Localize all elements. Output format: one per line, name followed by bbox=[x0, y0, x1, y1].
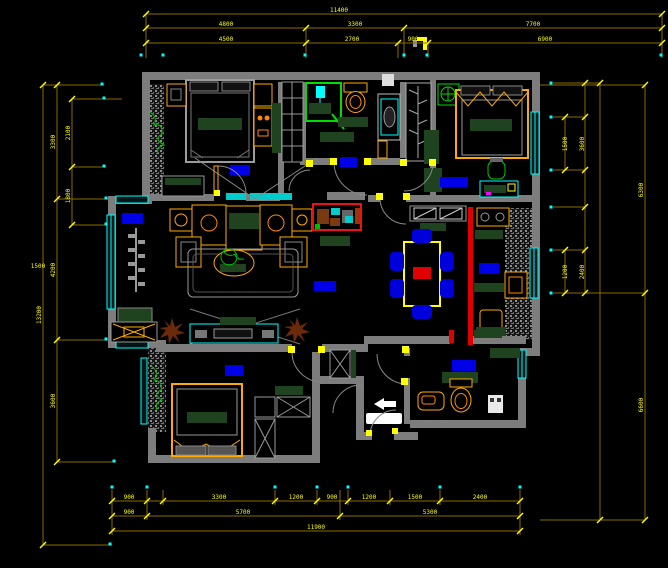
room-label-kitchen bbox=[479, 263, 499, 274]
dim-text: 3300 bbox=[212, 494, 227, 501]
door-hinge-mark bbox=[392, 428, 398, 434]
balcony-bench bbox=[118, 308, 152, 322]
dim-text: 6300 bbox=[638, 182, 645, 197]
bed-bl-drawer-b bbox=[208, 446, 236, 455]
dim-text: 2700 bbox=[345, 36, 360, 43]
wall-bl-east bbox=[312, 352, 320, 463]
bed-tl-blanket bbox=[198, 118, 242, 130]
bed-bl-drawer-a bbox=[176, 446, 206, 455]
kitchen-sink bbox=[505, 272, 527, 298]
tv bbox=[214, 329, 252, 338]
console-item-brown-b bbox=[330, 218, 340, 226]
sofa-cushion bbox=[229, 213, 259, 229]
dim-text: 6600 bbox=[638, 397, 645, 412]
dining-chair-left-1 bbox=[390, 252, 404, 271]
entrance-label-bar bbox=[366, 413, 402, 424]
kitchen-counter-green-a bbox=[475, 230, 503, 239]
extension-marker-dot bbox=[101, 83, 104, 86]
wall-top bbox=[150, 72, 540, 80]
soundbar bbox=[220, 317, 256, 325]
washbasin-cabinet bbox=[378, 141, 387, 158]
dim-text: 900 bbox=[327, 494, 338, 501]
room-label-living bbox=[314, 281, 336, 291]
utility-shelf-green-a bbox=[424, 130, 439, 164]
dresser-tl bbox=[254, 108, 272, 146]
extension-marker-dot bbox=[103, 97, 106, 100]
dim-text: 6900 bbox=[538, 36, 553, 43]
door-hinge-mark bbox=[400, 159, 407, 166]
console-item-cyan-a bbox=[331, 208, 340, 215]
bed-tr-pillow-left bbox=[461, 86, 490, 95]
room-label-bath-tl bbox=[340, 157, 357, 167]
door-hinge-mark bbox=[288, 346, 295, 353]
door-hinge-mark bbox=[376, 193, 383, 200]
nightstand-tr bbox=[254, 84, 272, 106]
wall-bath-tl-south-b bbox=[367, 158, 400, 165]
plant-brown-right bbox=[284, 317, 310, 343]
extension-marker-dot bbox=[274, 486, 277, 489]
extension-marker-dot bbox=[660, 54, 663, 57]
toilet-tl-tank bbox=[344, 83, 367, 92]
room-label-bath-br bbox=[452, 360, 476, 371]
dining-chair-right-2 bbox=[440, 279, 454, 298]
dim-text: 900 bbox=[408, 36, 419, 43]
plant-stand-leaf-5 bbox=[128, 262, 135, 266]
door-hinge-mark bbox=[214, 190, 220, 196]
window-balcony-top bbox=[116, 196, 148, 203]
shower-bench bbox=[309, 103, 331, 114]
sliding-track-red-stub bbox=[449, 330, 454, 343]
extension-marker-dot bbox=[162, 54, 165, 57]
door-hinge-mark bbox=[306, 160, 313, 167]
plant-stand-leaf-1 bbox=[128, 234, 135, 238]
extension-marker-dot bbox=[550, 206, 553, 209]
dim-text: 2400 bbox=[473, 494, 488, 501]
bed-tr-pillow-right bbox=[493, 86, 522, 95]
wall-bath-bottom bbox=[410, 420, 526, 428]
extension-marker-dot bbox=[403, 54, 406, 57]
extension-marker-dot bbox=[426, 54, 429, 57]
level-mark-a bbox=[417, 37, 427, 41]
wall-bath-tl-east bbox=[400, 82, 406, 158]
extension-marker-dot bbox=[105, 338, 108, 341]
washing-machine-knob-a bbox=[490, 398, 494, 402]
room-label-bedroom-bl bbox=[225, 365, 243, 376]
plant-stand-leaf-2 bbox=[138, 240, 145, 244]
bed-bl-blanket bbox=[187, 412, 227, 423]
dim-text: 2100 bbox=[65, 125, 72, 140]
floor-plan-canvas: 1140048003300770045002700900690021001800… bbox=[0, 0, 668, 568]
bed-tl-pillow-right bbox=[222, 82, 250, 91]
washing-machine bbox=[488, 395, 503, 413]
room-label-bedroom-tr bbox=[440, 177, 468, 187]
dim-text: 1500 bbox=[31, 263, 46, 270]
bed-tl-pillow-left bbox=[190, 82, 218, 91]
extension-marker-dot bbox=[105, 223, 108, 226]
dim-text: 5300 bbox=[423, 509, 438, 516]
wall-left-upper bbox=[142, 72, 150, 204]
console-item-green bbox=[315, 224, 320, 229]
dim-text: 900 bbox=[124, 494, 135, 501]
dim-text: 3600 bbox=[579, 136, 586, 151]
dresser-knob-b bbox=[265, 116, 270, 121]
door-hinge-mark bbox=[318, 346, 325, 353]
entrance-arrow-icon bbox=[374, 398, 396, 410]
door-hinge-mark bbox=[403, 193, 410, 200]
dim-text-total-bottom: 11900 bbox=[307, 524, 325, 531]
dining-chair-bottom bbox=[412, 305, 432, 319]
dim-text: 1800 bbox=[65, 188, 72, 203]
kitchen-counter-green-b bbox=[474, 283, 504, 292]
extension-marker-dot bbox=[550, 249, 553, 252]
dim-text: 4200 bbox=[50, 262, 57, 277]
chair-tr-back bbox=[490, 158, 503, 162]
dim-text: 3600 bbox=[50, 393, 57, 408]
dim-text: 1500 bbox=[408, 494, 423, 501]
plant-stand-leaf-4 bbox=[138, 254, 145, 258]
desk-tr-top bbox=[484, 185, 506, 193]
wall-mid-bottom-a bbox=[364, 336, 450, 344]
extension-marker-dot bbox=[304, 54, 307, 57]
extension-marker-dot bbox=[316, 486, 319, 489]
extension-marker-dot bbox=[550, 116, 553, 119]
dim-text: 7700 bbox=[526, 21, 541, 28]
desk-magenta-mark bbox=[486, 192, 491, 195]
washing-machine-knob-b bbox=[497, 398, 501, 402]
dining-table-runner bbox=[413, 267, 431, 279]
dim-text-total-left: 13200 bbox=[36, 306, 43, 324]
dim-text: 2400 bbox=[579, 264, 586, 279]
console-item-rust bbox=[355, 208, 360, 224]
dim-text: 1200 bbox=[362, 494, 377, 501]
bath-tl-rug-b bbox=[320, 132, 354, 142]
door-hinge-mark bbox=[401, 378, 408, 385]
extension-marker-dot bbox=[347, 486, 350, 489]
speaker-left bbox=[195, 330, 207, 338]
dining-chair-right-1 bbox=[440, 252, 454, 271]
extension-marker-dot bbox=[550, 292, 553, 295]
bath-tl-rug-a bbox=[338, 117, 368, 127]
extension-marker-dot bbox=[103, 165, 106, 168]
extension-marker-dot bbox=[146, 486, 149, 489]
toilet-tl-bowl bbox=[346, 92, 365, 113]
hall-rug bbox=[320, 236, 350, 246]
dim-text: 5700 bbox=[236, 509, 251, 516]
shoe-cabinet-green bbox=[351, 350, 356, 378]
sliding-track-red bbox=[468, 207, 473, 345]
door-hinge-mark bbox=[364, 158, 371, 165]
door-hinge-mark bbox=[330, 158, 337, 165]
hatched-wall-balcony-left bbox=[148, 348, 166, 432]
room-label-balcony bbox=[122, 213, 143, 224]
dining-chair-top bbox=[412, 229, 432, 243]
extension-marker-dot bbox=[519, 486, 522, 489]
bl-shelf-green bbox=[275, 386, 303, 395]
wall-bath-tl-south-a bbox=[300, 158, 334, 165]
side-table-a bbox=[170, 209, 192, 231]
door-hinge-mark bbox=[366, 430, 372, 436]
plant-stand-leaf-8 bbox=[138, 282, 145, 286]
extension-marker-dot bbox=[105, 197, 108, 200]
door-hinge-mark bbox=[429, 159, 436, 166]
door-arc-closet bbox=[289, 170, 310, 191]
window-bl-balcony bbox=[141, 358, 147, 424]
extension-marker-dot bbox=[140, 54, 143, 57]
extension-marker-dot bbox=[439, 486, 442, 489]
nightstand-tl bbox=[167, 84, 186, 106]
extension-marker-dot bbox=[111, 486, 114, 489]
sliding-door-panel-b bbox=[250, 193, 292, 200]
dim-text: 3300 bbox=[50, 134, 57, 149]
plant-stand-leaf-3 bbox=[128, 248, 135, 252]
sliding-door-panel-a bbox=[226, 193, 246, 200]
wall-living-south-a bbox=[156, 344, 292, 352]
wardrobe-bl-corner bbox=[255, 397, 275, 417]
extension-marker-dot bbox=[550, 82, 553, 85]
bed-tr-blanket bbox=[470, 119, 512, 131]
shower-head-icon bbox=[316, 86, 325, 98]
washbasin-bowl bbox=[384, 107, 395, 127]
plant-stand-leaf-6 bbox=[138, 268, 145, 272]
door-leaf-bedroom-tl bbox=[214, 166, 218, 194]
speaker-right bbox=[262, 330, 274, 338]
plant-stand-leaf-7 bbox=[128, 276, 135, 280]
extension-marker-dot bbox=[550, 169, 553, 172]
wall-hall-stub bbox=[327, 192, 365, 200]
console-item-brown-a bbox=[317, 209, 329, 224]
chair-tr bbox=[488, 161, 505, 179]
door-arc-dining bbox=[380, 198, 406, 224]
dim-text: 4800 bbox=[219, 21, 234, 28]
extension-marker-dot bbox=[113, 460, 116, 463]
dining-chair-left-2 bbox=[390, 279, 404, 298]
dim-text: 900 bbox=[124, 509, 135, 516]
dim-text: 4500 bbox=[219, 36, 234, 43]
extension-marker-dot bbox=[109, 543, 112, 546]
console-item-cyan-b bbox=[345, 216, 353, 223]
structural-column bbox=[382, 74, 394, 86]
dining-side-green bbox=[474, 330, 502, 338]
dim-text: 1200 bbox=[562, 264, 569, 279]
dresser-bottom-tl-top bbox=[165, 178, 201, 185]
dim-text: 1500 bbox=[562, 136, 569, 151]
dresser-knob-a bbox=[258, 116, 263, 121]
toilet-br-tank bbox=[450, 379, 472, 387]
side-table-b bbox=[292, 209, 312, 231]
dim-text: 3300 bbox=[348, 21, 363, 28]
bath-br-counter-top bbox=[490, 348, 520, 358]
cad-floor-plan-stage: 1140048003300770045002700900690021001800… bbox=[0, 0, 668, 568]
coffee-table-tray bbox=[220, 264, 246, 272]
closet-green-strip bbox=[272, 103, 281, 153]
door-hinge-mark bbox=[402, 346, 409, 353]
dim-text-total-top: 11400 bbox=[330, 7, 348, 14]
dim-text: 1200 bbox=[289, 494, 304, 501]
